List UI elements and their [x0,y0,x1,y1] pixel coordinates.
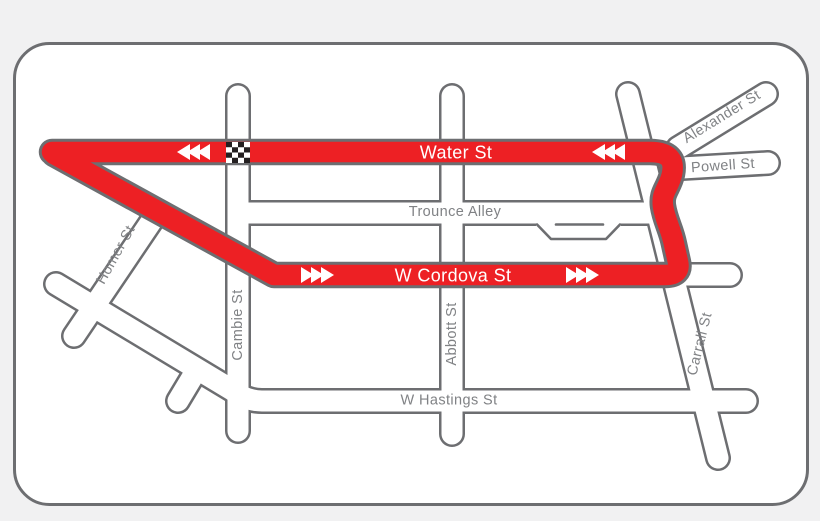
course-map: Water St W Cordova St Trounce Alley W Ha… [0,0,820,521]
cambie-st-label: Cambie St [230,289,246,360]
trounce-alley-label: Trounce Alley [409,204,502,220]
w-hastings-st-label: W Hastings St [400,393,497,409]
course-map-page: Water St W Cordova St Trounce Alley W Ha… [0,0,820,521]
abbott-st-label: Abbott St [444,302,460,365]
water-st-label: Water St [420,143,493,163]
checker-pattern [226,142,250,163]
notch-fill [536,205,621,238]
trounce-alley-notch [536,205,621,239]
w-cordova-st-label: W Cordova St [395,266,512,286]
start-finish-checkered-flag-icon [226,142,250,163]
